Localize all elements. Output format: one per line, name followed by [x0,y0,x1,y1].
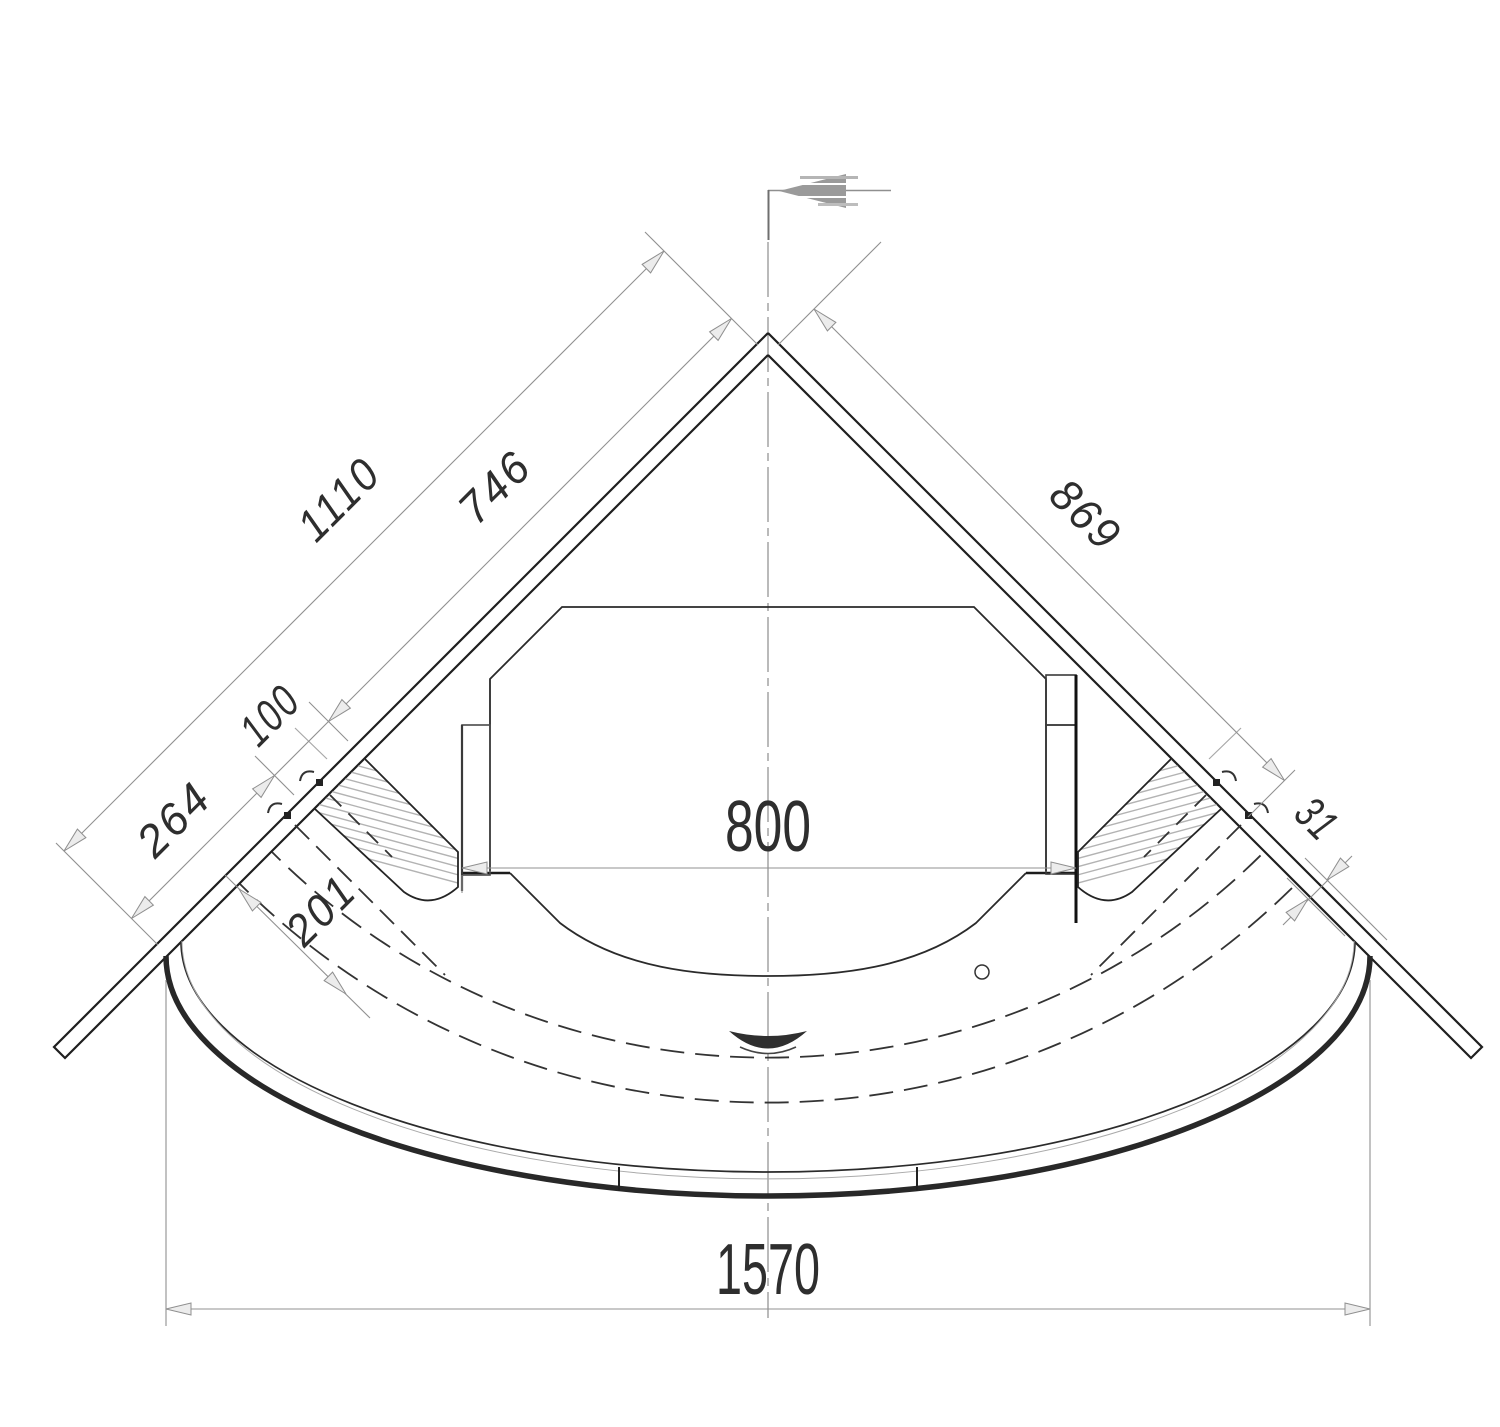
svg-text:800: 800 [725,787,811,867]
svg-text:1570: 1570 [716,1230,820,1310]
